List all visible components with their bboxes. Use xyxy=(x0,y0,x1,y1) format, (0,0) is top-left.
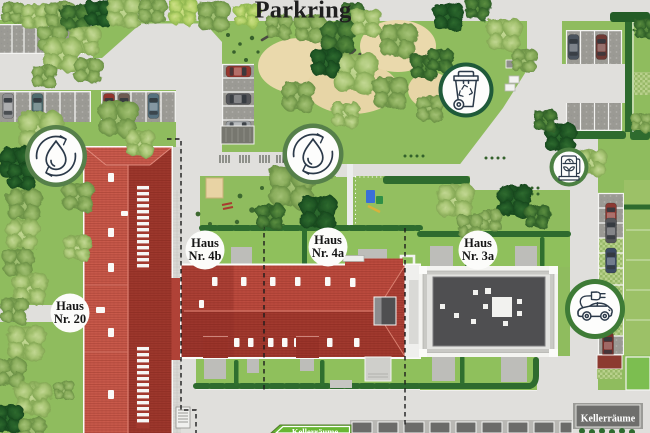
svg-text:Nr. 20: Nr. 20 xyxy=(54,312,86,326)
svg-text:Parkring: Parkring xyxy=(255,0,352,24)
svg-text:Haus: Haus xyxy=(314,233,342,247)
svg-text:Nr. 3a: Nr. 3a xyxy=(462,249,495,263)
svg-text:Haus: Haus xyxy=(56,299,84,313)
svg-text:Nr. 4a: Nr. 4a xyxy=(312,246,345,260)
svg-text:Kellerräume: Kellerräume xyxy=(292,427,338,433)
svg-text:Haus: Haus xyxy=(191,236,219,250)
svg-text:Kellerräume: Kellerräume xyxy=(581,414,636,425)
svg-text:Nr. 4b: Nr. 4b xyxy=(189,249,222,263)
svg-text:Haus: Haus xyxy=(464,236,492,250)
